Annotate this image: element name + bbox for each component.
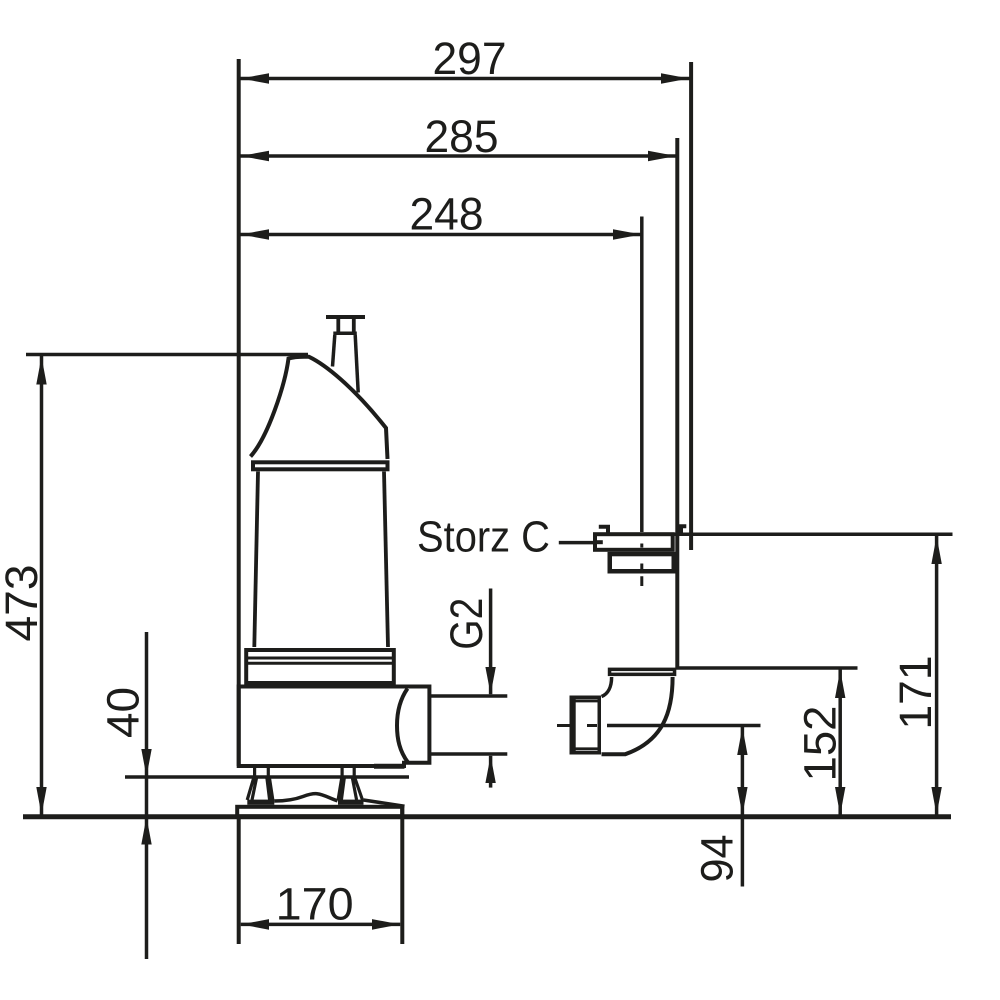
svg-text:G2: G2: [441, 598, 492, 650]
svg-text:152: 152: [795, 706, 846, 782]
svg-text:285: 285: [425, 111, 499, 162]
svg-text:297: 297: [433, 33, 507, 84]
svg-text:248: 248: [410, 189, 484, 240]
svg-text:473: 473: [0, 565, 47, 642]
svg-text:40: 40: [98, 687, 149, 738]
svg-text:94: 94: [692, 835, 743, 883]
svg-text:171: 171: [890, 656, 941, 730]
svg-text:Storz C: Storz C: [417, 512, 550, 561]
svg-text:170: 170: [276, 879, 354, 930]
